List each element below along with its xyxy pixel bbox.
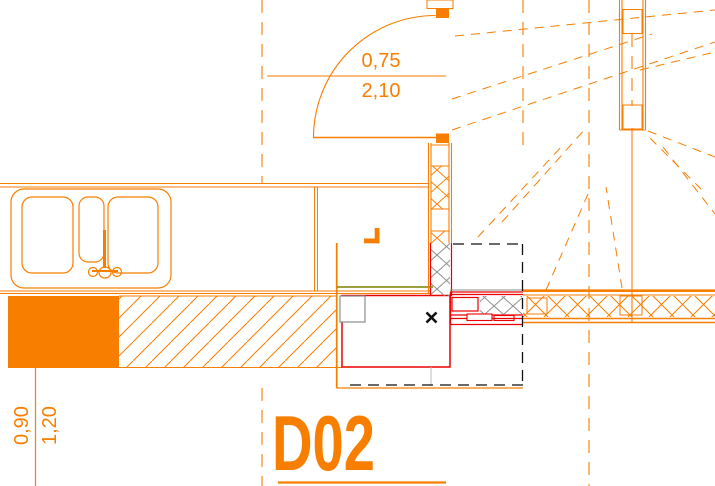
right-wall-insulation (523, 296, 715, 317)
plan-drawing: 0,75 2,10 0,90 1,20 D02 (0, 0, 715, 486)
detail-code-text: D02 (272, 400, 375, 486)
column-blocking-bottom (623, 105, 642, 129)
column-blocking-top (623, 10, 642, 34)
wall-dimension: 0,90 1,20 (11, 368, 61, 486)
door-frame-top (436, 9, 449, 19)
door-dimension-height: 2,10 (362, 80, 401, 102)
section-x-marker (427, 313, 437, 323)
right-wall (523, 291, 715, 323)
detail-section-red (337, 243, 523, 386)
corner-symbol (364, 228, 380, 243)
sink-bowl-right (108, 197, 158, 273)
stair-tread-lines (452, 10, 715, 290)
cad-canvas: 0,75 2,10 0,90 1,20 D02 (0, 0, 715, 486)
wall-dim-outer: 1,20 (39, 406, 61, 445)
door-dimension-width: 0,75 (362, 50, 401, 72)
door-dimension: 0,75 2,10 (267, 50, 446, 102)
section-gray-box (340, 296, 365, 322)
detail-label: D02 (272, 400, 446, 486)
section-wall-insulation (430, 243, 450, 296)
wall-blocking-1 (431, 145, 449, 166)
door-frame-bottom (436, 134, 449, 144)
door-jamb-top (427, 0, 453, 9)
wall-blocking-2 (431, 209, 449, 231)
sink-bowl-middle (79, 197, 104, 262)
wall-dim-inner: 0,90 (11, 406, 33, 445)
kitchen-sink (11, 189, 171, 288)
wall-insulation-1 (431, 166, 449, 209)
lower-wall-solid (8, 296, 119, 368)
wall-insulation-2 (431, 231, 449, 243)
sink-bowl-left (22, 197, 73, 273)
section-band-red (450, 292, 523, 325)
faucet (89, 230, 122, 278)
lower-wall-hatched (119, 243, 342, 388)
